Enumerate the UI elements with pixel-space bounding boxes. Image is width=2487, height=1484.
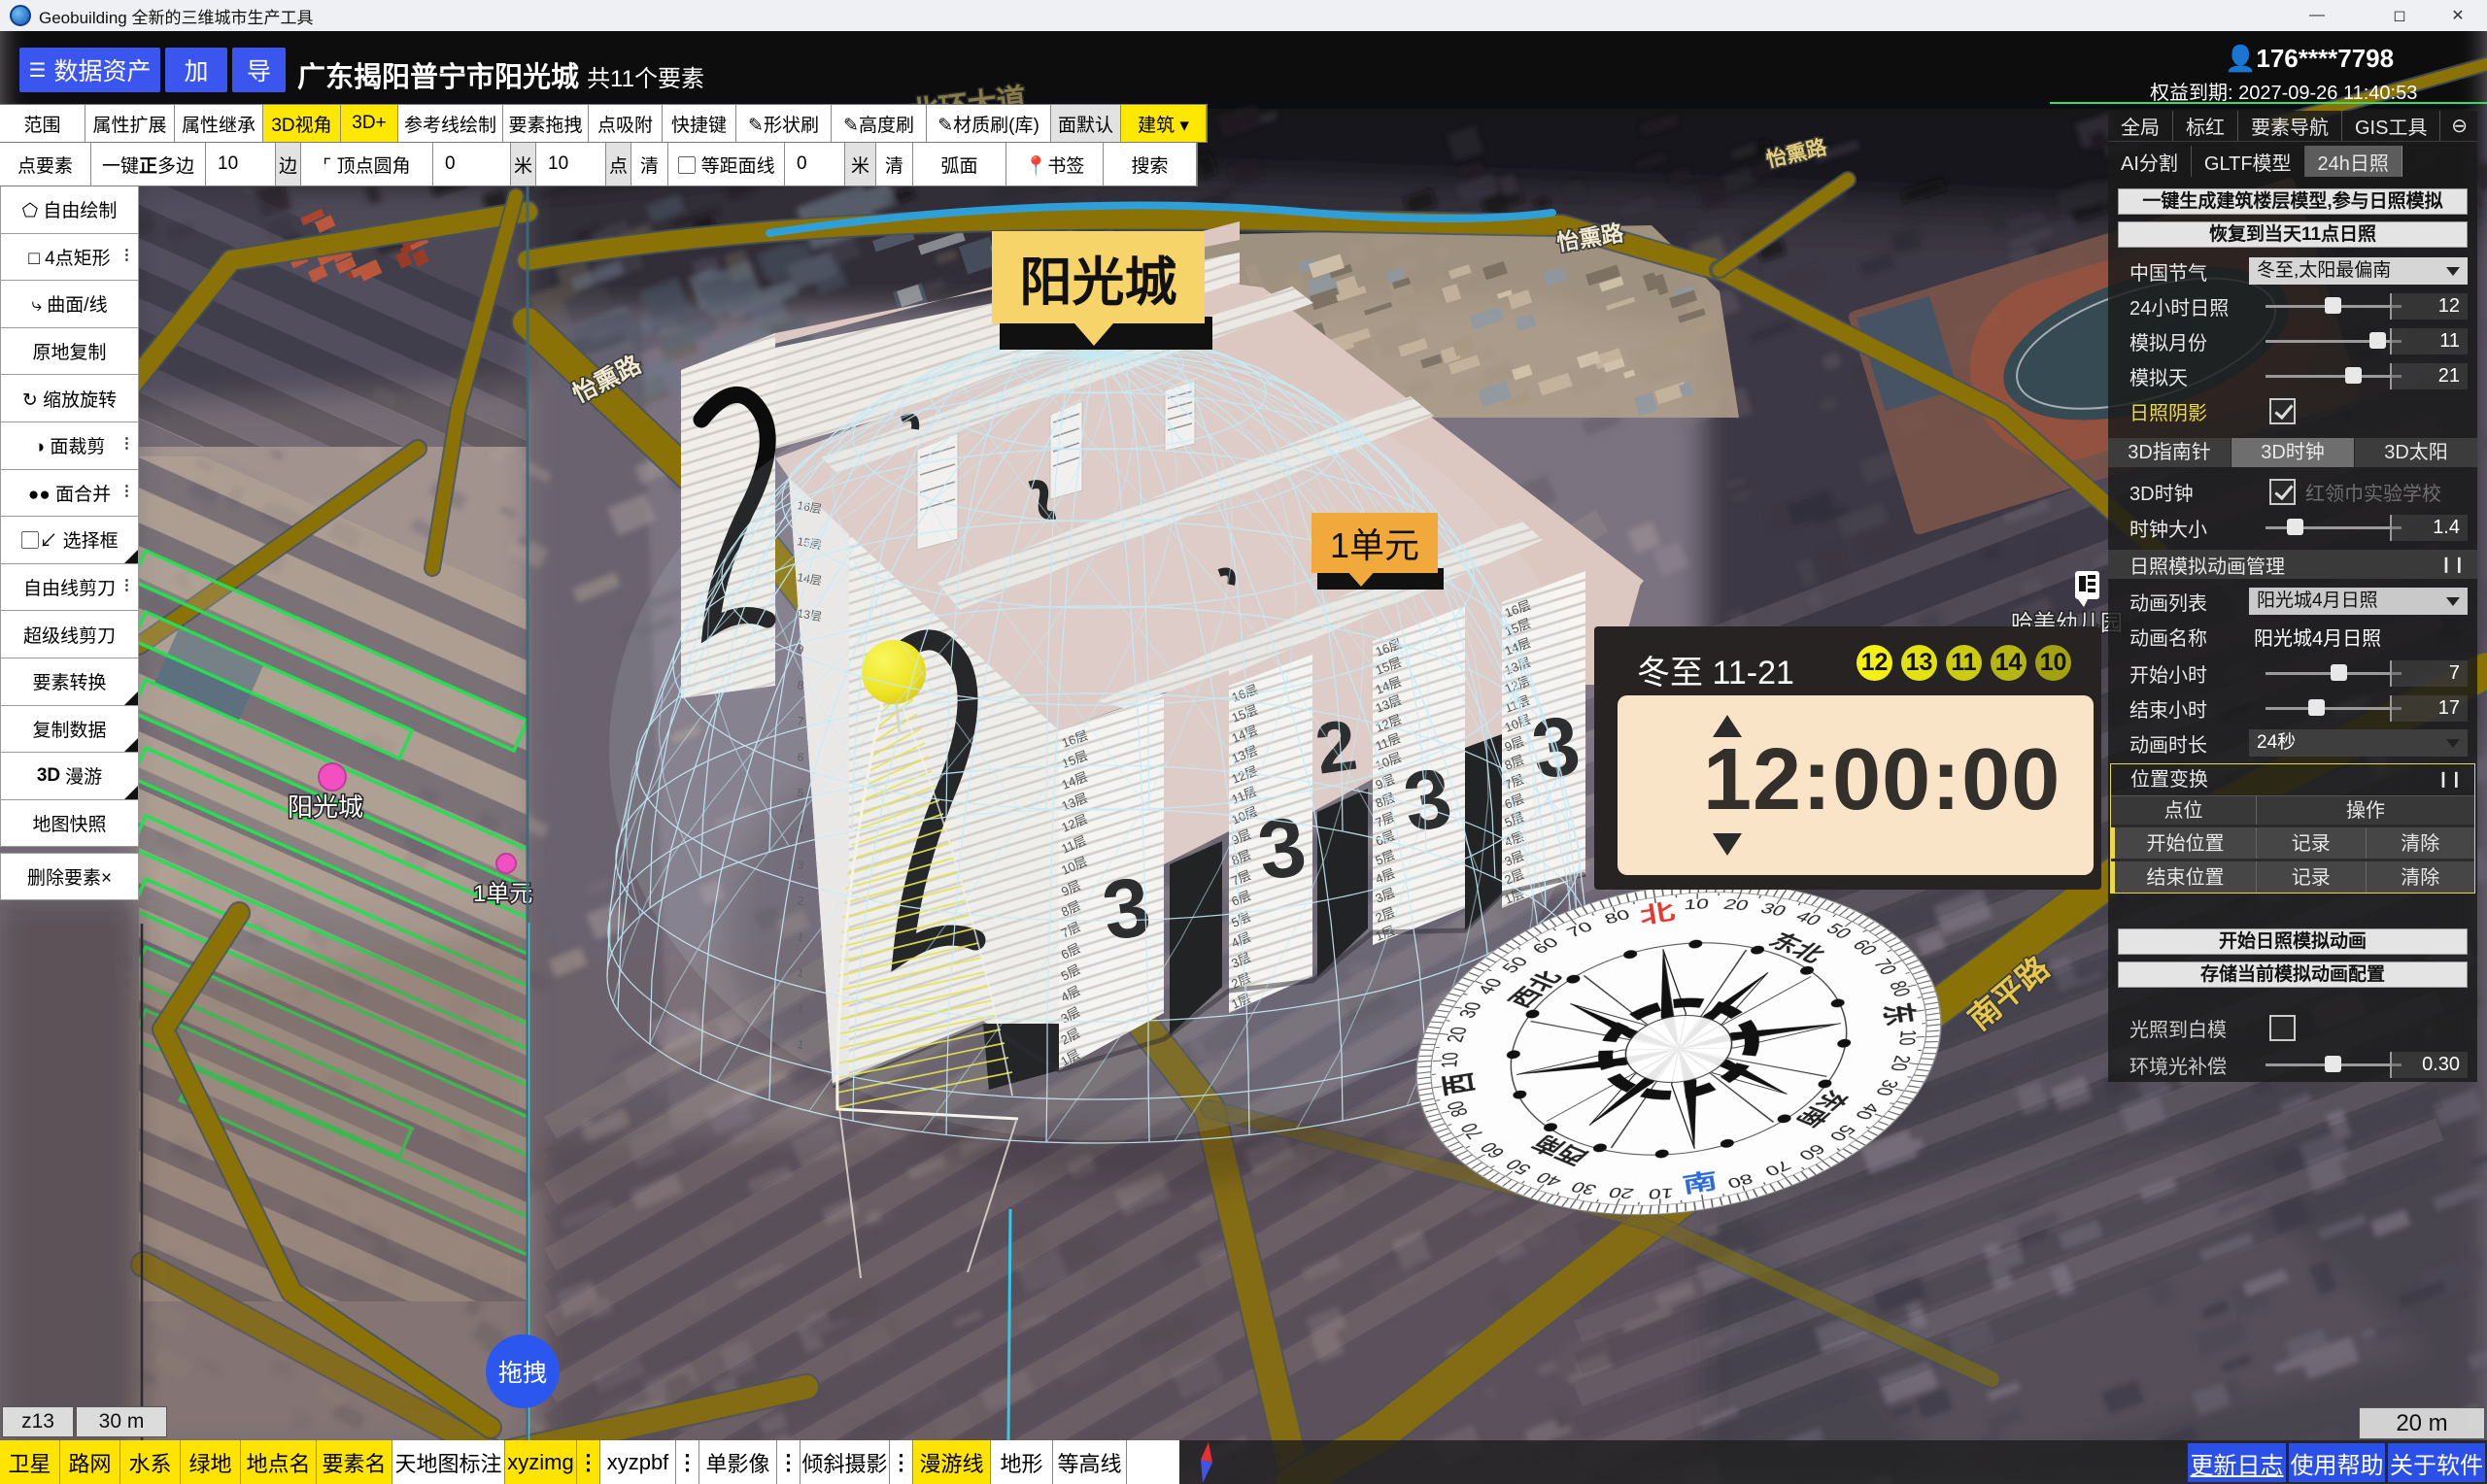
svg-text:10: 10 — [1648, 1185, 1674, 1201]
svg-text:10: 10 — [1893, 1029, 1920, 1046]
svg-text:阳光城: 阳光城 — [288, 793, 363, 822]
svg-text:10: 10 — [1684, 896, 1710, 913]
svg-text:10: 10 — [1438, 1052, 1464, 1068]
svg-text:1单元: 1单元 — [473, 881, 532, 907]
